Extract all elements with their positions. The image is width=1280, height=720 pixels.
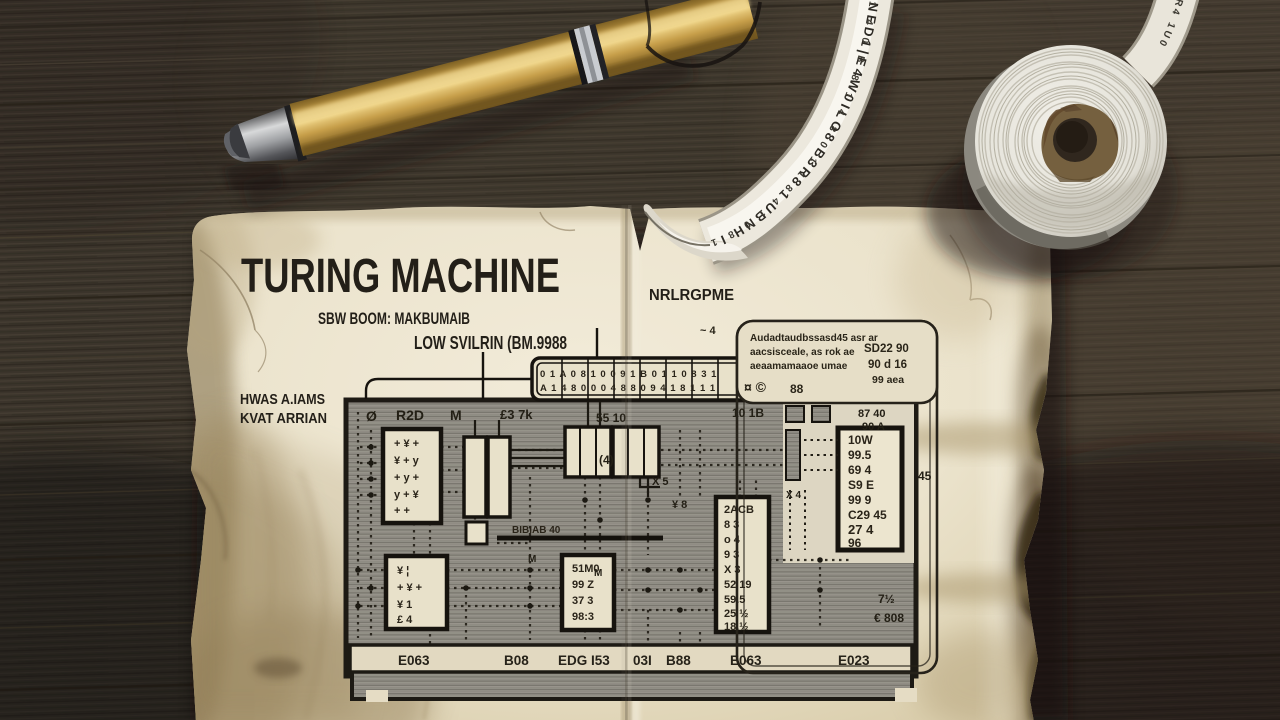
- svg-text:E063: E063: [398, 653, 430, 668]
- svg-text:7½: 7½: [878, 592, 895, 606]
- svg-text:98:3: 98:3: [572, 611, 594, 623]
- svg-text:99 aea: 99 aea: [872, 374, 904, 386]
- svg-text:¥ 8: ¥ 8: [672, 499, 687, 511]
- svg-text:(4): (4): [599, 453, 614, 467]
- svg-text:y + ¥: y + ¥: [394, 489, 420, 501]
- svg-text:90 d 16: 90 d 16: [868, 359, 907, 371]
- svg-text:37 3: 37 3: [572, 595, 593, 607]
- svg-text:£3 7k: £3 7k: [500, 407, 533, 422]
- svg-text:HWAS A.IAMS: HWAS A.IAMS: [240, 391, 325, 408]
- svg-text:S9 E: S9 E: [848, 478, 874, 492]
- svg-text:59.5: 59.5: [724, 594, 745, 606]
- svg-text:99 Z: 99 Z: [572, 579, 594, 591]
- svg-text:NRLRGPME: NRLRGPME: [649, 287, 734, 304]
- svg-text:M: M: [594, 568, 602, 579]
- svg-text:2ACB: 2ACB: [724, 504, 754, 516]
- svg-text:Ø: Ø: [366, 408, 377, 424]
- svg-text:BIBIAB 40: BIBIAB 40: [512, 525, 561, 536]
- svg-text:aacsisceale, as rok ae: aacsisceale, as rok ae: [750, 347, 855, 358]
- svg-text:+ ¥ +: + ¥ +: [397, 582, 422, 594]
- svg-text:27 4: 27 4: [848, 522, 874, 537]
- svg-text:X 4: X 4: [786, 490, 801, 501]
- svg-text:B08: B08: [504, 653, 529, 668]
- svg-text:R2D: R2D: [396, 407, 424, 423]
- svg-text:¥ + y: ¥ + y: [394, 455, 420, 467]
- svg-text:87 40: 87 40: [858, 408, 886, 420]
- svg-text:KVAT ARRIAN: KVAT ARRIAN: [240, 410, 327, 427]
- svg-text:LOW SVILRIN (BM.9988: LOW SVILRIN (BM.9988: [414, 333, 567, 353]
- svg-text:£ 4: £ 4: [397, 614, 413, 626]
- svg-text:69 4: 69 4: [848, 463, 872, 477]
- svg-text:aeaamamaaoe umae: aeaamamaaoe umae: [750, 361, 848, 372]
- svg-text:+ y +: + y +: [394, 472, 419, 484]
- svg-text:03I: 03I: [633, 653, 652, 668]
- svg-text:SD22 90: SD22 90: [864, 343, 909, 355]
- svg-text:¥ 1: ¥ 1: [397, 599, 412, 611]
- svg-text:90 A: 90 A: [862, 421, 885, 433]
- svg-text:B88: B88: [666, 653, 691, 668]
- svg-text:I53: I53: [591, 653, 610, 668]
- svg-text:99.5: 99.5: [848, 448, 872, 462]
- svg-text:¤ ©: ¤ ©: [744, 379, 767, 395]
- svg-text:10W: 10W: [848, 433, 873, 447]
- svg-text:SBW BOOM: MAKBUMAIB: SBW BOOM: MAKBUMAIB: [318, 309, 470, 328]
- svg-text:96: 96: [848, 536, 862, 550]
- svg-text:X 5: X 5: [652, 476, 669, 488]
- svg-text:+ +: + +: [394, 505, 410, 517]
- svg-text:99 9: 99 9: [848, 493, 872, 507]
- svg-text:TURING MACHINE: TURING MACHINE: [241, 250, 560, 303]
- svg-text:M: M: [528, 554, 536, 565]
- svg-text:88: 88: [790, 382, 804, 396]
- svg-text:EDG: EDG: [558, 653, 587, 668]
- svg-text:¥ ¦: ¥ ¦: [397, 565, 409, 577]
- svg-text:€ 808: € 808: [874, 611, 904, 625]
- svg-text:C29 45: C29 45: [848, 508, 887, 522]
- svg-text:~ 4: ~ 4: [700, 325, 716, 337]
- svg-text:+ ¥ +: + ¥ +: [394, 438, 419, 450]
- svg-text:M: M: [450, 407, 462, 423]
- svg-text:Audadtaudbssasd45 asr ar: Audadtaudbssasd45 asr ar: [750, 333, 878, 344]
